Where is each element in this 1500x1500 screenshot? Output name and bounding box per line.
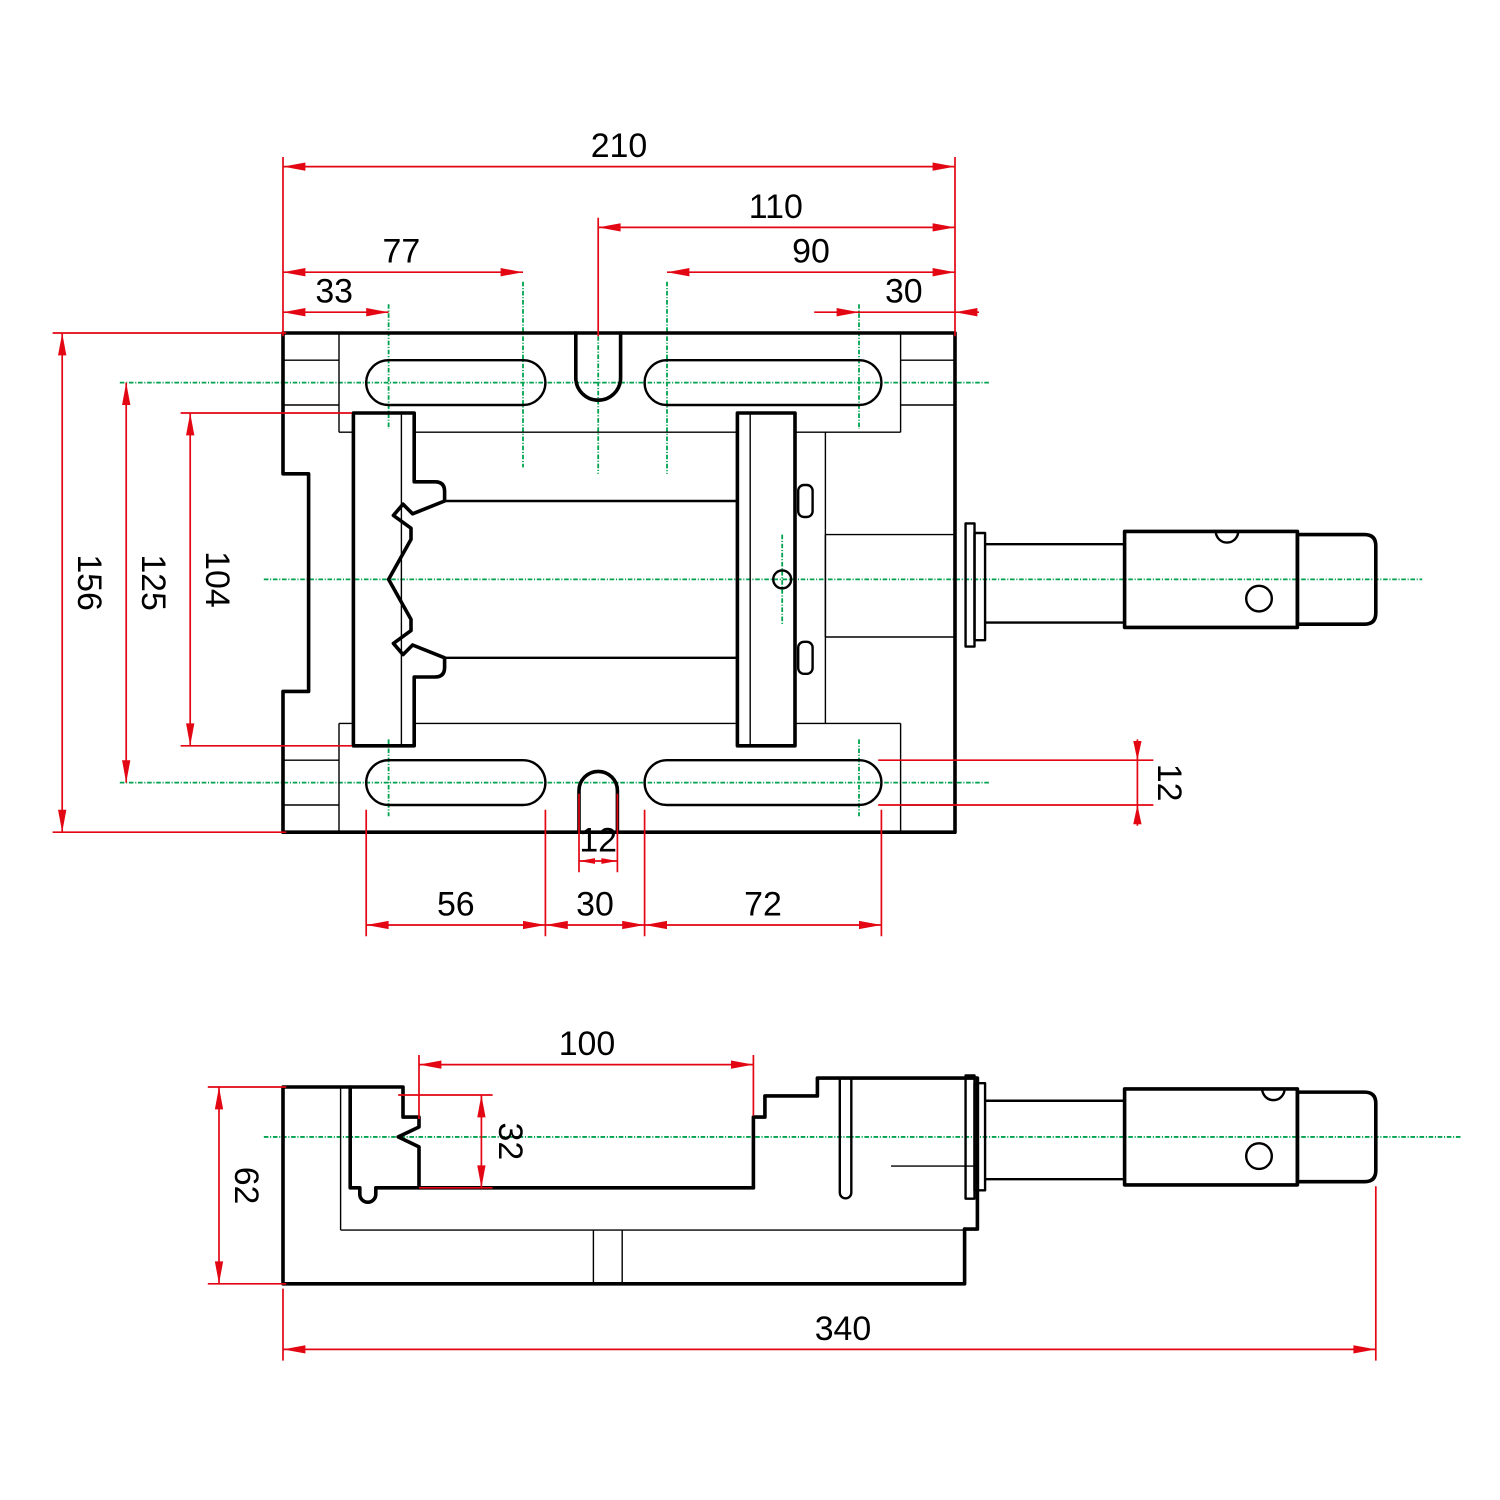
tommy-bar-hole-side — [1246, 1143, 1272, 1169]
dim-label-104: 104 — [198, 551, 236, 608]
dim-label-156: 156 — [70, 554, 108, 611]
collar-ring-outer — [966, 523, 975, 646]
screw-shaft — [985, 544, 1125, 622]
dim-label-30-bottom: 30 — [576, 885, 614, 923]
dim-label-100: 100 — [559, 1025, 616, 1063]
clamp-slot — [840, 1078, 852, 1198]
dim-label-210: 210 — [591, 127, 648, 165]
screw-shaft-side — [985, 1101, 1125, 1179]
dim-label-72: 72 — [744, 885, 782, 923]
gib-tab-bottom — [798, 642, 812, 674]
screw-end-cap-side — [1297, 1092, 1375, 1182]
top-view-dimensions: 210 110 77 90 33 30 — [53, 127, 1189, 936]
screw-end-cap — [1297, 535, 1375, 625]
dim-label-340: 340 — [815, 1310, 872, 1348]
collar-ring-inner — [975, 533, 986, 640]
top-view: 210 110 77 90 33 30 — [53, 127, 1423, 936]
dim-label-30-top: 30 — [885, 273, 923, 311]
tommy-bar-hole — [1246, 586, 1272, 612]
side-view: 100 32 62 340 — [208, 1025, 1461, 1361]
dim-label-125: 125 — [134, 554, 172, 611]
dim-label-110: 110 — [749, 188, 803, 226]
vise-technical-drawing: 210 110 77 90 33 30 — [0, 0, 1500, 1500]
fixed-jaw-block — [350, 1087, 419, 1202]
top-view-internal-lines — [283, 333, 955, 832]
dim-label-77: 77 — [383, 233, 421, 271]
drawing-sheet: 210 110 77 90 33 30 — [0, 0, 1500, 1500]
top-view-body-outline — [283, 333, 955, 832]
dim-label-33: 33 — [315, 273, 353, 311]
movable-jaw-body — [798, 432, 955, 723]
dim-label-90: 90 — [792, 233, 830, 271]
dim-label-62: 62 — [227, 1167, 265, 1205]
movable-jaw-block — [753, 1078, 977, 1229]
dim-label-12-slot: 12 — [1150, 764, 1188, 802]
dim-label-12-notch: 12 — [579, 821, 617, 859]
gib-tab-top — [798, 485, 812, 517]
lead-screw-top-view — [966, 523, 1376, 646]
top-view-centerlines — [120, 282, 1422, 816]
side-view-dimensions: 100 32 62 340 — [208, 1025, 1376, 1361]
side-view-internal-lines — [341, 1087, 965, 1284]
dim-label-32: 32 — [491, 1123, 529, 1161]
side-view-base-outline — [283, 1087, 965, 1284]
dim-label-56: 56 — [437, 885, 475, 923]
